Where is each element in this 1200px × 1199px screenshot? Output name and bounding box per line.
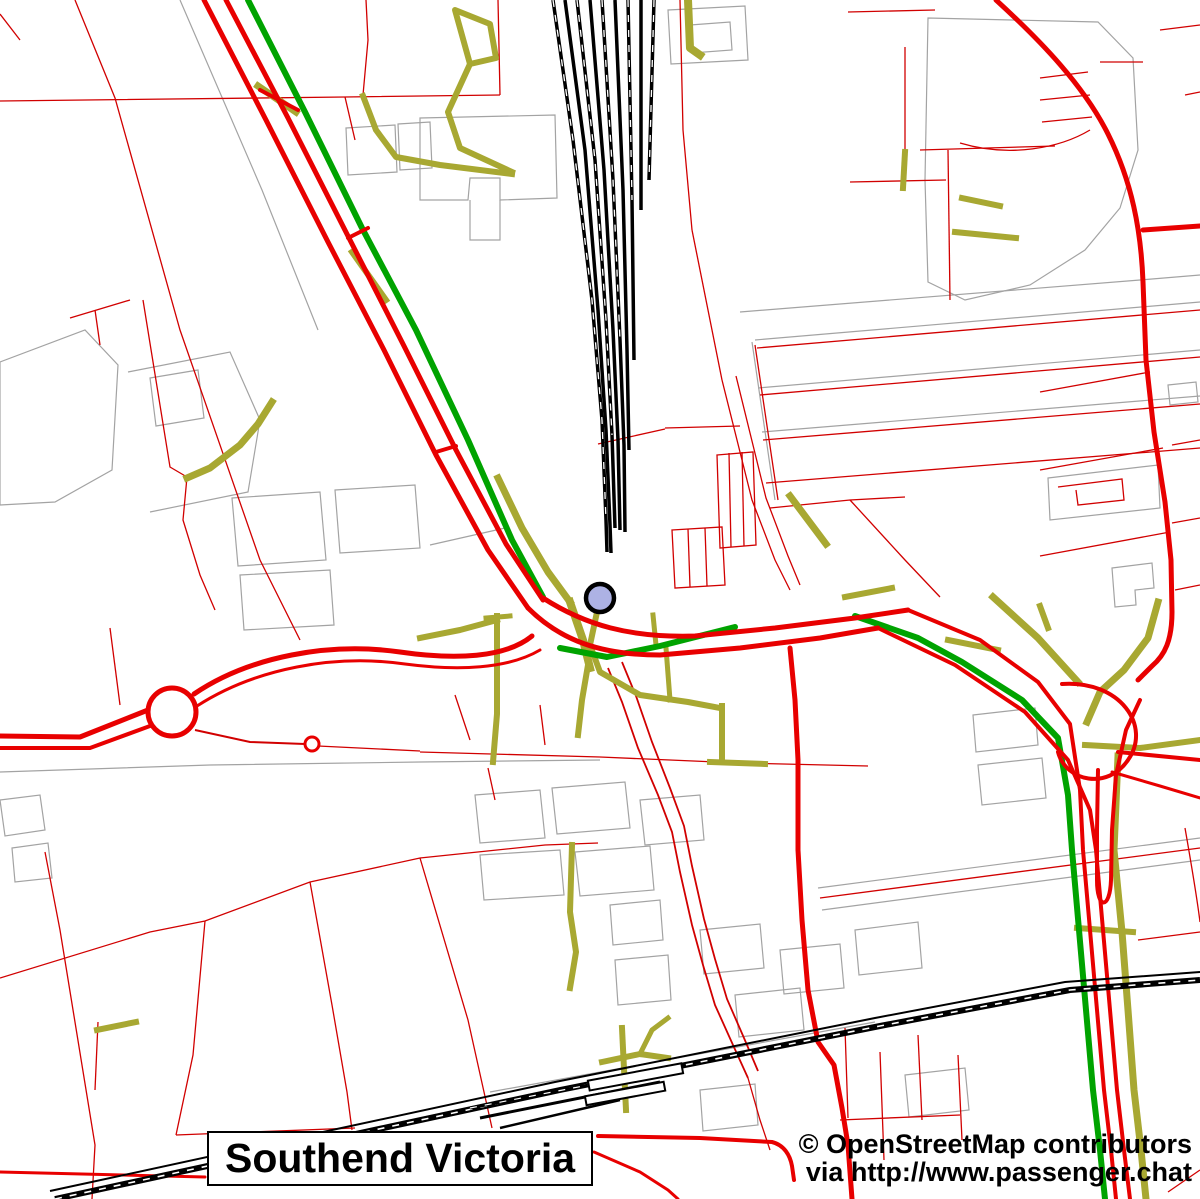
railways-layer	[50, 0, 1200, 1199]
station-label: Southend Victoria	[225, 1135, 575, 1182]
building-outlines-layer	[0, 0, 1200, 1131]
attribution-line-1: © OpenStreetMap contributors	[799, 1130, 1192, 1158]
map-attribution: © OpenStreetMap contributors via http://…	[799, 1130, 1192, 1186]
map-viewport[interactable]: Southend Victoria © OpenStreetMap contri…	[0, 0, 1200, 1199]
map-canvas[interactable]	[0, 0, 1200, 1199]
mini-roundabout	[305, 737, 319, 751]
roundabout	[148, 688, 196, 736]
cycle-routes-layer	[248, 0, 1105, 1199]
station-label-box: Southend Victoria	[207, 1131, 593, 1186]
station-marker[interactable]	[586, 584, 614, 612]
station-platforms	[585, 1063, 683, 1105]
attribution-line-2: via http://www.passenger.chat	[799, 1158, 1192, 1186]
